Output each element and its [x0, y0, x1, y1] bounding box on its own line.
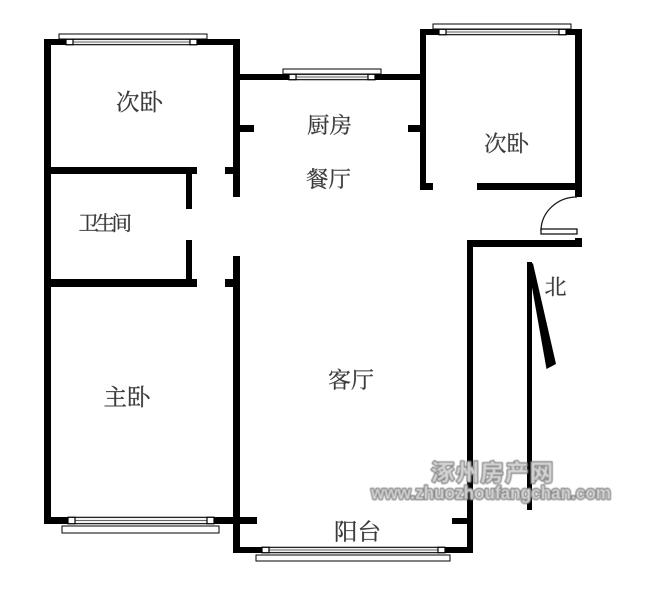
svg-text:www.zhuozhoufangchan.com: www.zhuozhoufangchan.com	[370, 483, 611, 503]
